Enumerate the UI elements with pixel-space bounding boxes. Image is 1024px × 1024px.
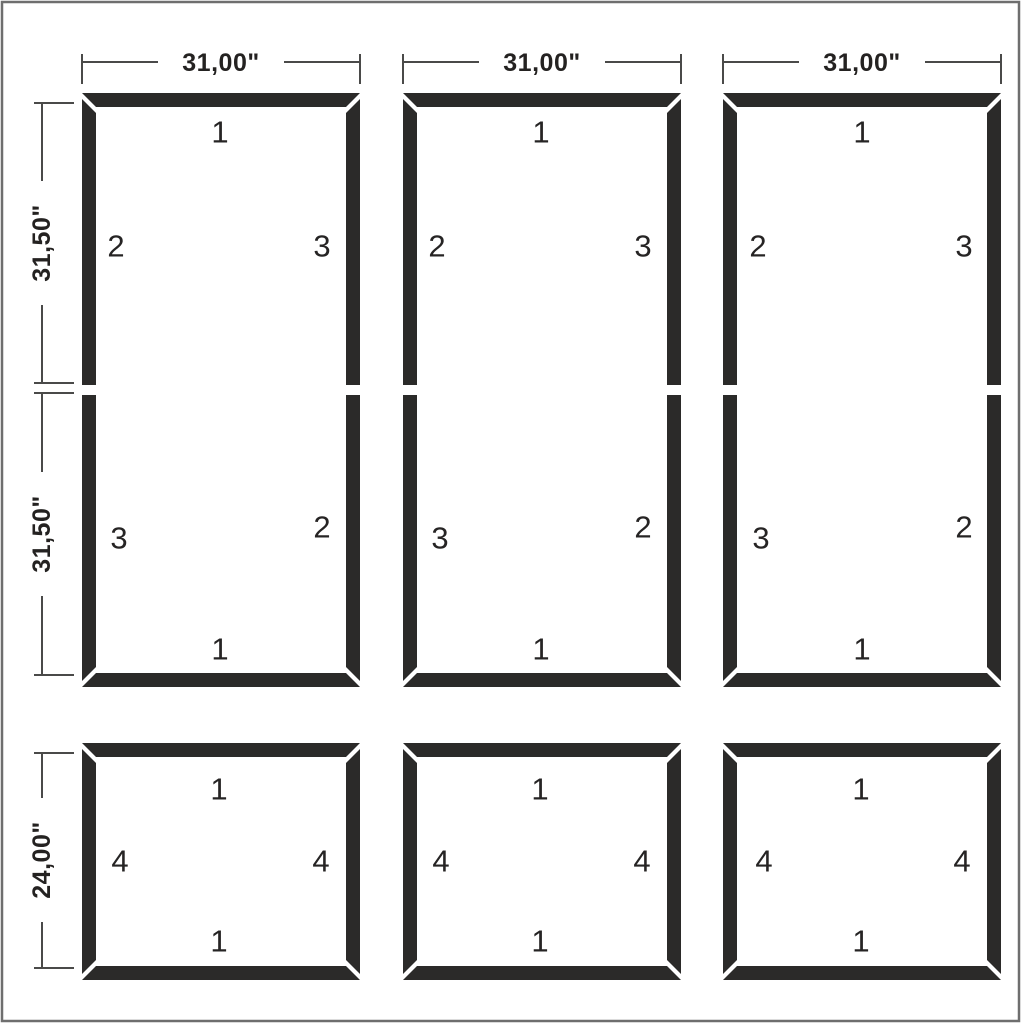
width-dimension-1-label: 31,00"	[182, 49, 259, 77]
tall-2-lower-right-label: 2	[634, 510, 651, 545]
short-1-top-label: 1	[210, 772, 227, 807]
tall-2-lower-bottom-label: 1	[532, 632, 549, 667]
tall-3-lower-left-label: 3	[752, 521, 769, 556]
tall-3-upper-left-label: 2	[749, 229, 766, 264]
height-dimension-lower-label: 31,50"	[28, 495, 56, 572]
tall-1-lower-bottom-label: 1	[211, 632, 228, 667]
tall-3-upper-right-label: 3	[955, 229, 972, 264]
tall-frame-1	[82, 93, 360, 687]
tall-2-upper-top-label: 1	[532, 115, 549, 150]
wall-moulding-plan: 31,00" 1 2 3 3 2 1 1 4 4 1 31,00" 1 2 3 …	[0, 0, 1024, 1024]
tall-3-lower-bottom-label: 1	[853, 632, 870, 667]
tall-2-upper-right-label: 3	[634, 229, 651, 264]
short-1-right-label: 4	[312, 844, 329, 879]
short-3-left-label: 4	[755, 844, 772, 879]
tall-frame-2	[403, 93, 681, 687]
tall-1-upper-top-label: 1	[211, 115, 228, 150]
tall-1-upper-right-label: 3	[313, 229, 330, 264]
short-3-right-label: 4	[953, 844, 970, 879]
short-2-left-label: 4	[432, 844, 449, 879]
tall-2-lower-left-label: 3	[431, 521, 448, 556]
short-2-right-label: 4	[633, 844, 650, 879]
short-1-bottom-label: 1	[210, 924, 227, 959]
page-border	[2, 2, 1019, 1021]
short-1-left-label: 4	[111, 844, 128, 879]
tall-1-lower-left-label: 3	[110, 521, 127, 556]
moulding-plan-diagram: 31,00" 1 2 3 3 2 1 1 4 4 1 31,00" 1 2 3 …	[0, 0, 1024, 1024]
height-dimension-short-label: 24,00"	[28, 821, 56, 898]
height-dimension-short: 24,00"	[28, 753, 74, 968]
width-dimension-2-label: 31,00"	[503, 49, 580, 77]
tall-3-upper-top-label: 1	[853, 115, 870, 150]
tall-3-lower-right-label: 2	[955, 510, 972, 545]
short-3-bottom-label: 1	[852, 924, 869, 959]
tall-2-upper-left-label: 2	[428, 229, 445, 264]
tall-frame-3	[723, 93, 1001, 687]
height-dimension-lower: 31,50"	[28, 393, 74, 675]
height-dimension-upper-label: 31,50"	[28, 204, 56, 281]
short-2-bottom-label: 1	[531, 924, 548, 959]
tall-1-lower-right-label: 2	[313, 510, 330, 545]
height-dimension-upper: 31,50"	[28, 103, 74, 383]
short-3-top-label: 1	[852, 772, 869, 807]
short-2-top-label: 1	[531, 772, 548, 807]
width-dimension-3-label: 31,00"	[823, 49, 900, 77]
tall-1-upper-left-label: 2	[107, 229, 124, 264]
